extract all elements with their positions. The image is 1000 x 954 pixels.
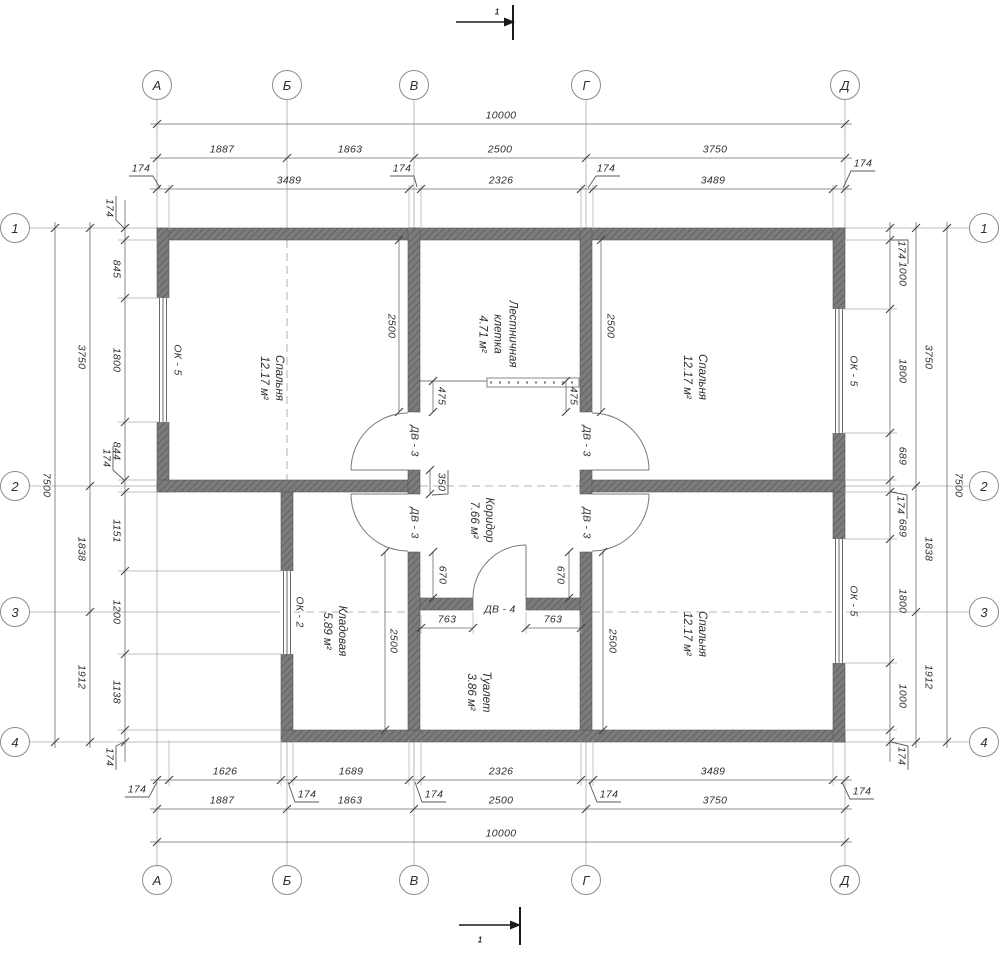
dim-top-inner-3: 3489: [701, 176, 726, 187]
dim-right-inner-3: 689: [897, 447, 908, 465]
room-label-staircase: Лестничнаяклетка4.71 м²: [475, 300, 520, 367]
room-label-bedroom-top-right: Спальня12.17 м²: [679, 354, 709, 400]
axis-circle-left-3: 4: [0, 727, 30, 757]
doors: [351, 413, 649, 598]
dim-left-inner-1: 845: [111, 260, 122, 278]
door-label-dv3-lower-left: ДВ - 3: [409, 506, 420, 539]
dim-top-mid-3: 2500: [488, 145, 513, 156]
door-label-dv3-upper-right: ДВ - 3: [581, 424, 592, 457]
dim-room-storage-depth: 2500: [388, 629, 399, 654]
axis-circle-bottom-4: Д: [830, 865, 860, 895]
dim-right-inner-6: 1000: [897, 684, 908, 709]
dim-bottom-mid-1: 1887: [210, 796, 235, 807]
dim-bottom-inner-3: 2326: [489, 767, 514, 778]
dim-top-overall: 10000: [486, 111, 517, 122]
dim-bottom-inner-1: 1626: [213, 767, 238, 778]
door-label-dv4: ДВ - 4: [483, 605, 516, 616]
dim-right-wall-3: 174: [896, 747, 907, 765]
room-label-storage: Кладовая5.89 м²: [319, 606, 349, 657]
dim-stair-landing-left: 475: [436, 387, 447, 405]
dim-left-inner-5: 1200: [111, 600, 122, 625]
axis-circle-top-3: Г: [571, 70, 601, 100]
dim-top-wall-d: 174: [854, 159, 872, 170]
dim-left-mid-1: 3750: [76, 345, 87, 370]
room-label-line: Спальня: [694, 354, 709, 400]
axis-circle-right-2: 3: [969, 597, 999, 627]
dim-left-mid-3: 1912: [76, 665, 87, 690]
dim-top-mid-2: 1863: [338, 145, 363, 156]
window-label-ok2: ОК - 2: [294, 596, 305, 627]
room-label-line: 4.71 м²: [475, 300, 490, 367]
stairs: [420, 378, 579, 387]
door-label-dv3-upper-left: ДВ - 3: [409, 424, 420, 457]
window-label-ok5-left: ОК - 5: [172, 344, 183, 375]
dim-right-inner-5: 1800: [897, 589, 908, 614]
dim-bottom-mid-3: 2500: [489, 796, 514, 807]
room-label-line: Спальня: [271, 355, 286, 401]
dim-door-offset-left: 670: [437, 566, 448, 584]
window-ok5-right-bottom: [832, 539, 846, 663]
axis-circle-bottom-1: Б: [272, 865, 302, 895]
dim-right-overall: 7500: [953, 473, 964, 498]
room-label-line: 5.89 м²: [319, 606, 334, 657]
dim-top-mid-4: 3750: [703, 145, 728, 156]
axis-circle-top-2: В: [399, 70, 429, 100]
dim-right-inner-1: 1000: [897, 262, 908, 287]
window-label-ok5-right-bottom: ОК - 5: [848, 585, 859, 616]
dim-left-wall-2: 174: [101, 449, 112, 467]
axis-circle-bottom-0: А: [142, 865, 172, 895]
axis-circle-left-2: 3: [0, 597, 30, 627]
room-label-line: 12.17 м²: [256, 355, 271, 401]
window-ok2-storage: [280, 571, 294, 654]
axis-circle-top-0: А: [142, 70, 172, 100]
axis-circle-top-4: Д: [830, 70, 860, 100]
room-label-line: Туалет: [478, 672, 493, 713]
dim-bottom-wall-d: 174: [853, 787, 871, 798]
dim-pier: 350: [436, 473, 447, 491]
floor-plan-sheet: 1000018871863250037503489232634891741741…: [0, 0, 1000, 954]
dim-bottom-mid-2: 1863: [338, 796, 363, 807]
room-label-line: 12.17 м²: [679, 354, 694, 400]
dim-bottom-inner-2: 1689: [339, 767, 364, 778]
room-label-line: 12.17 м²: [679, 611, 694, 657]
door-dv4-toilet: [473, 545, 526, 598]
section-cut-label-top: 1: [495, 7, 499, 18]
dim-stair-landing-right: 475: [568, 387, 579, 405]
dim-left-inner-2: 1800: [111, 348, 122, 373]
window-label-ok5-right-top: ОК - 5: [848, 355, 859, 386]
room-label-bedroom-bottom-right: Спальня12.17 м²: [679, 611, 709, 657]
dim-top-inner-1: 3489: [277, 176, 302, 187]
axis-circle-left-1: 2: [0, 471, 30, 501]
section-mark-bottom: [459, 907, 521, 945]
dim-left-overall: 7500: [41, 473, 52, 498]
room-label-line: Кладовая: [334, 606, 349, 657]
section-cut-label-bottom: 1: [478, 935, 482, 946]
dim-top-wall-g: 174: [597, 164, 615, 175]
dim-top-mid-1: 1887: [210, 145, 235, 156]
dim-bottom-mid-4: 3750: [703, 796, 728, 807]
window-ok5-left: [156, 298, 170, 422]
dim-left-mid-2: 1838: [76, 537, 87, 562]
axis-circle-bottom-2: В: [399, 865, 429, 895]
dim-top-wall-v: 174: [393, 164, 411, 175]
axis-circle-right-0: 1: [969, 213, 999, 243]
dim-toilet-door-right: 763: [544, 615, 562, 626]
dim-right-mid-1: 3750: [923, 345, 934, 370]
dim-left-inner-4: 1151: [111, 519, 122, 543]
dim-room-topright-depth: 2500: [605, 314, 616, 339]
dim-bottom-wall-b: 174: [298, 790, 316, 801]
room-label-line: 7.66 м²: [466, 497, 481, 542]
dim-bottom-inner-4: 3489: [701, 767, 726, 778]
dim-right-mid-2: 1838: [923, 537, 934, 562]
dim-left-inner-6: 1138: [111, 680, 122, 704]
dim-bottom-wall-v: 174: [425, 790, 443, 801]
dim-toilet-door-left: 763: [438, 615, 456, 626]
door-dv3-upper-left: [351, 413, 408, 470]
axis-circle-right-1: 2: [969, 471, 999, 501]
dim-bottom-wall-a: 174: [128, 785, 146, 796]
dim-right-wall-2: 174: [895, 496, 906, 514]
dim-door-offset-right: 670: [555, 566, 566, 584]
dim-top-wall-a: 174: [132, 164, 150, 175]
door-label-dv3-lower-right: ДВ - 3: [581, 506, 592, 539]
dim-bottom-overall: 10000: [486, 829, 517, 840]
room-label-corridor: Коридор7.66 м²: [466, 497, 496, 542]
dim-top-inner-2: 2326: [489, 176, 514, 187]
room-label-bedroom-left: Спальня12.17 м²: [256, 355, 286, 401]
dim-left-wall-1: 174: [104, 199, 115, 217]
dim-right-wall-1: 174: [896, 241, 907, 259]
dim-room-left-depth: 2500: [386, 314, 397, 339]
section-mark-top: [456, 5, 515, 40]
window-ok5-right-top: [832, 309, 846, 433]
dim-right-inner-4: 689: [897, 519, 908, 537]
door-dv3-upper-right: [592, 413, 649, 470]
room-label-line: Лестничная: [505, 300, 520, 367]
axis-circle-right-3: 4: [969, 727, 999, 757]
axis-circle-bottom-3: Г: [571, 865, 601, 895]
axis-circle-top-1: Б: [272, 70, 302, 100]
room-label-toilet: Туалет3.86 м²: [463, 672, 493, 713]
dim-right-inner-2: 1800: [897, 359, 908, 384]
room-label-line: Коридор: [481, 497, 496, 542]
room-label-line: Спальня: [694, 611, 709, 657]
door-dv3-lower-right: [592, 494, 649, 551]
dim-right-mid-3: 1912: [923, 665, 934, 690]
door-dv3-lower-left: [351, 494, 408, 551]
dim-left-wall-3: 174: [104, 748, 115, 766]
dim-bottom-wall-g: 174: [600, 790, 618, 801]
dim-room-bottomright-depth: 2500: [607, 629, 618, 654]
room-label-line: 3.86 м²: [463, 672, 478, 713]
axis-circle-left-0: 1: [0, 213, 30, 243]
room-label-line: клетка: [490, 300, 505, 367]
